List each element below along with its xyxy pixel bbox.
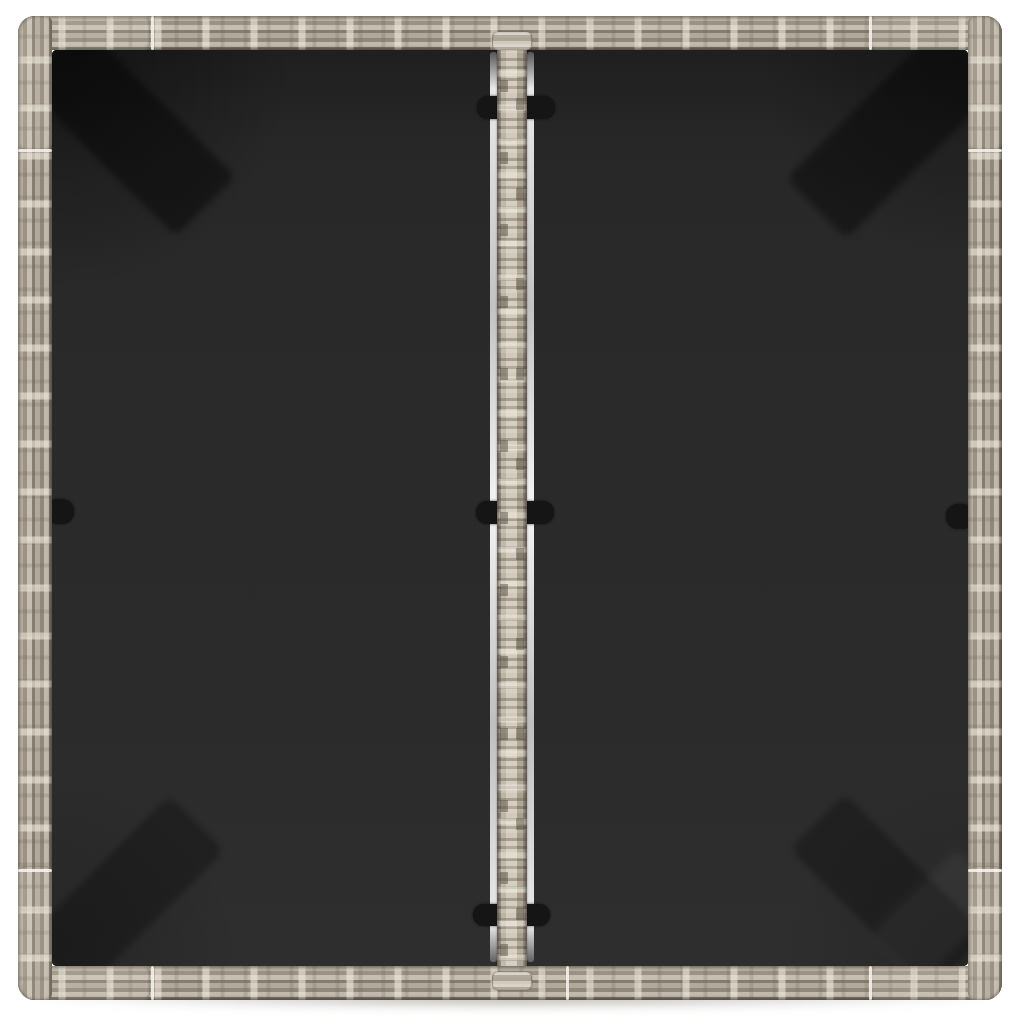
frame-rail-left [18,16,52,1000]
center-divider-strip [497,46,527,974]
product-photo [0,0,1024,1024]
frame-seam-right-upper [968,149,1002,152]
corner-block-top-right-vertical [968,16,1002,150]
glass-clip-frame-right [946,504,968,529]
glass-panel-left [52,50,497,966]
divider-joint-top [492,32,532,50]
glass-clip-frame-left [52,499,74,524]
glass-panel-right [527,50,968,966]
frame-seam-right-lower [968,869,1002,872]
frame-seam-left-lower [18,869,52,872]
frame-seam-bottom-center [566,966,569,1000]
frame-seam-bottom-right [869,966,872,1000]
frame-seam-left-upper [18,149,52,152]
frame-seam-bottom-left [151,966,154,1000]
frame-seam-top-right [869,16,872,50]
frame-seam-top-left [151,16,154,50]
frame-rail-right [968,16,1002,1000]
corner-block-top-left-vertical [18,16,52,150]
corner-block-bottom-left-vertical [18,866,52,1000]
divider-joint-bottom [492,972,532,990]
corner-block-bottom-right-vertical [968,866,1002,1000]
